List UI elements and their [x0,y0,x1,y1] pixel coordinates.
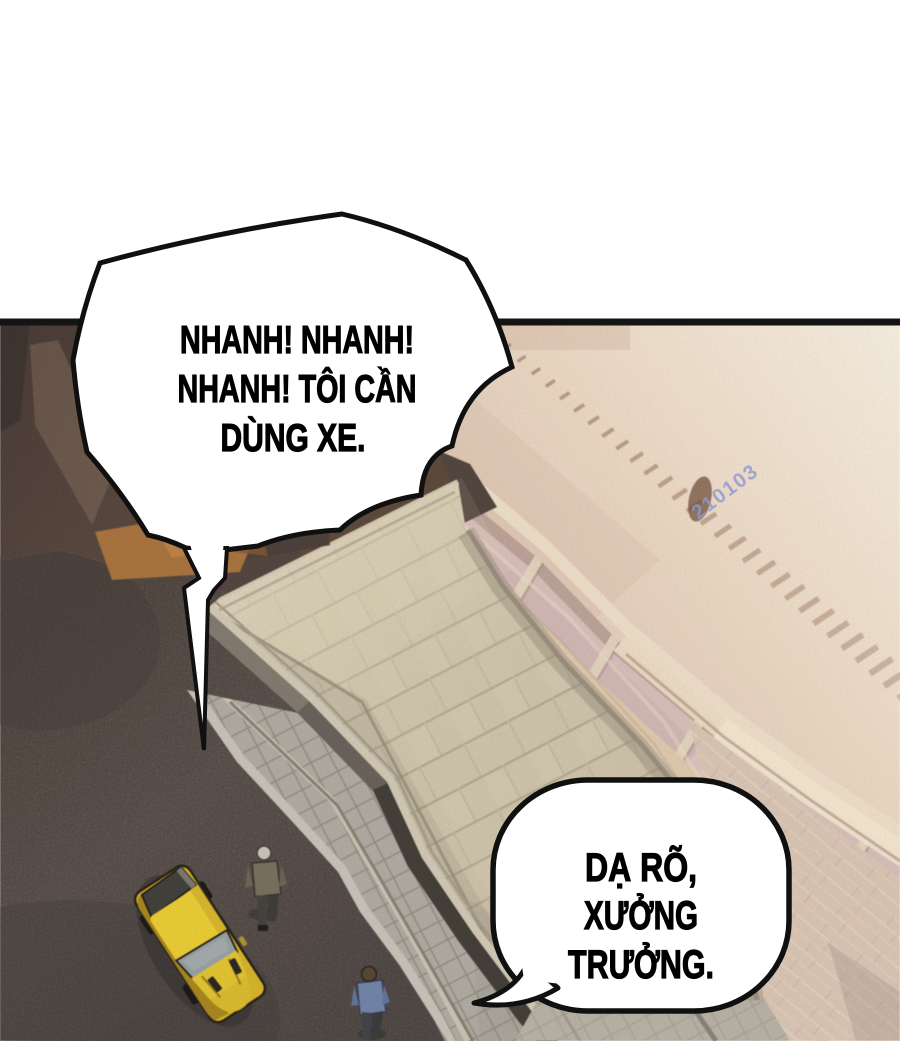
svg-text:NHANH! NHANH!: NHANH! NHANH! [180,319,414,362]
svg-text:TRƯỞNG.: TRƯỞNG. [568,941,714,987]
svg-text:NHANH! TÔI CẦN: NHANH! TÔI CẦN [178,366,417,411]
svg-text:DẠ RÕ,: DẠ RÕ, [585,844,697,890]
svg-text:XƯỞNG: XƯỞNG [584,892,698,938]
svg-text:DÙNG XE.: DÙNG XE. [221,416,366,460]
